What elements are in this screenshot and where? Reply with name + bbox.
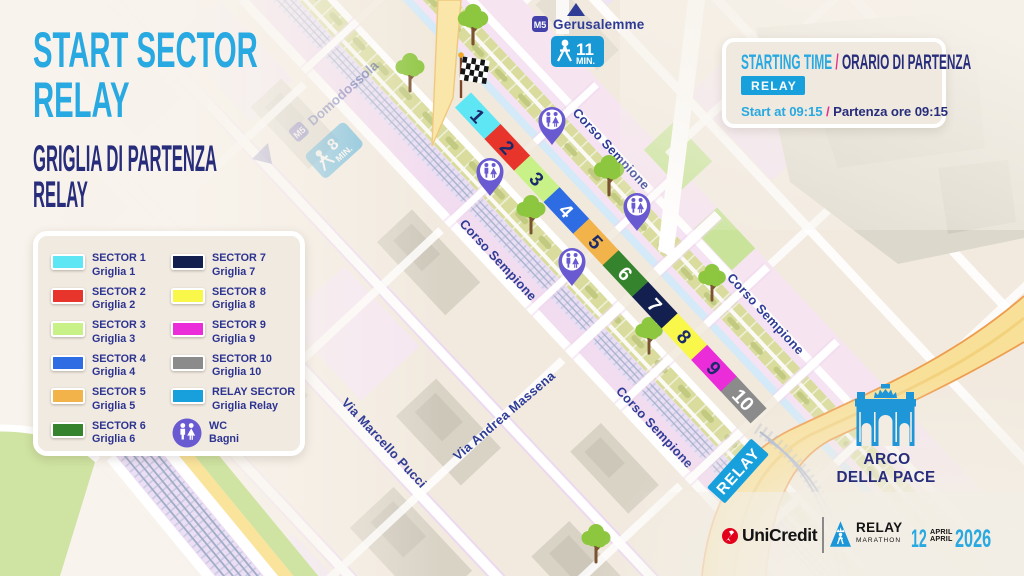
svg-text:Gerusalemme: Gerusalemme [553,17,645,32]
svg-text:MIN.: MIN. [576,56,595,66]
svg-text:M5: M5 [534,20,547,30]
svg-text:DELLA PACE: DELLA PACE [836,469,935,486]
svg-text:ARCO: ARCO [863,451,910,468]
